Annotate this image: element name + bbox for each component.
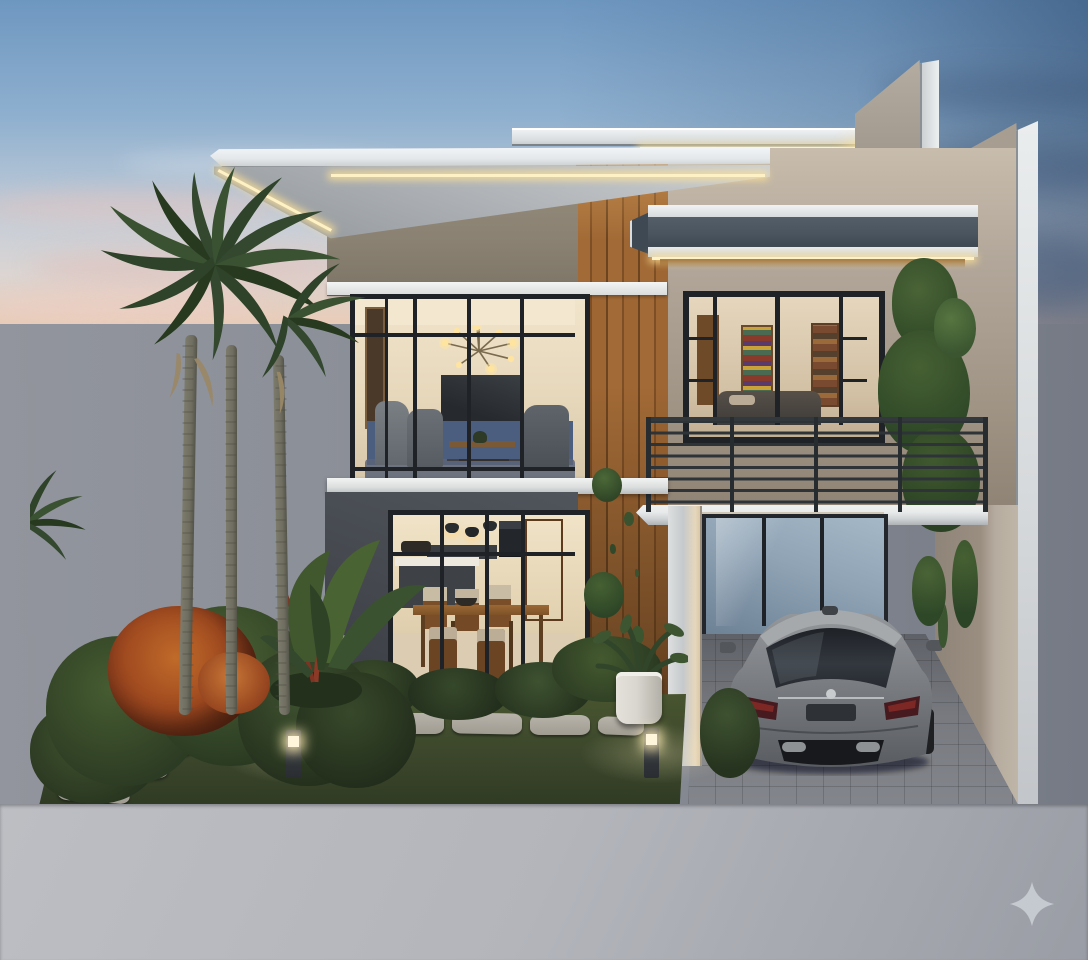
- sidelight-rail: [841, 337, 867, 340]
- white-planter-pot: [616, 672, 662, 724]
- parapet-fin-right-cap: [1016, 121, 1038, 811]
- armchair: [523, 405, 569, 469]
- railing-post: [898, 417, 902, 512]
- hanging-vine: [912, 556, 946, 626]
- table-plant: [473, 431, 487, 443]
- foreground-concrete: [0, 804, 1088, 960]
- railing-post: [814, 417, 818, 512]
- window-mullion: [440, 515, 444, 683]
- hanging-vine: [952, 540, 978, 628]
- sidelight-rail: [841, 379, 867, 382]
- vine-foliage: [934, 298, 976, 358]
- balcony-railing: [646, 420, 988, 512]
- bollard-glow: [288, 736, 299, 747]
- slat-vine: [592, 468, 622, 502]
- sidelight-rail: [689, 379, 715, 382]
- bed-pillow: [729, 395, 755, 405]
- pendant-light: [465, 527, 479, 537]
- window-mullion: [520, 299, 524, 479]
- door-mullion: [775, 297, 780, 425]
- window-mullion: [413, 299, 417, 479]
- door-mullion: [839, 297, 843, 425]
- sparkle-icon: [1008, 880, 1056, 928]
- shrub: [700, 688, 760, 778]
- bollard-glow: [646, 734, 657, 745]
- sidelight-rail: [689, 337, 715, 340]
- window-mullion: [485, 515, 489, 683]
- railing-post: [646, 417, 651, 512]
- bollard-path-light: [286, 730, 301, 778]
- door-mullion: [713, 297, 717, 425]
- palm-trees: [30, 150, 410, 730]
- window-mullion: [467, 299, 471, 479]
- window-mullion: [521, 515, 525, 683]
- stepping-stone: [530, 715, 590, 735]
- railing-post: [730, 417, 734, 512]
- wall-tv: [441, 375, 521, 427]
- bollard-path-light: [644, 728, 659, 778]
- canopy-dark-band: [648, 217, 978, 247]
- pendant-light: [445, 523, 459, 533]
- railing-post: [983, 417, 988, 512]
- rendered-house-scene: [0, 0, 1088, 960]
- canopy-bottom-edge: [648, 247, 978, 257]
- canopy-top-edge: [648, 205, 978, 217]
- upper-roof-fascia: [512, 128, 904, 146]
